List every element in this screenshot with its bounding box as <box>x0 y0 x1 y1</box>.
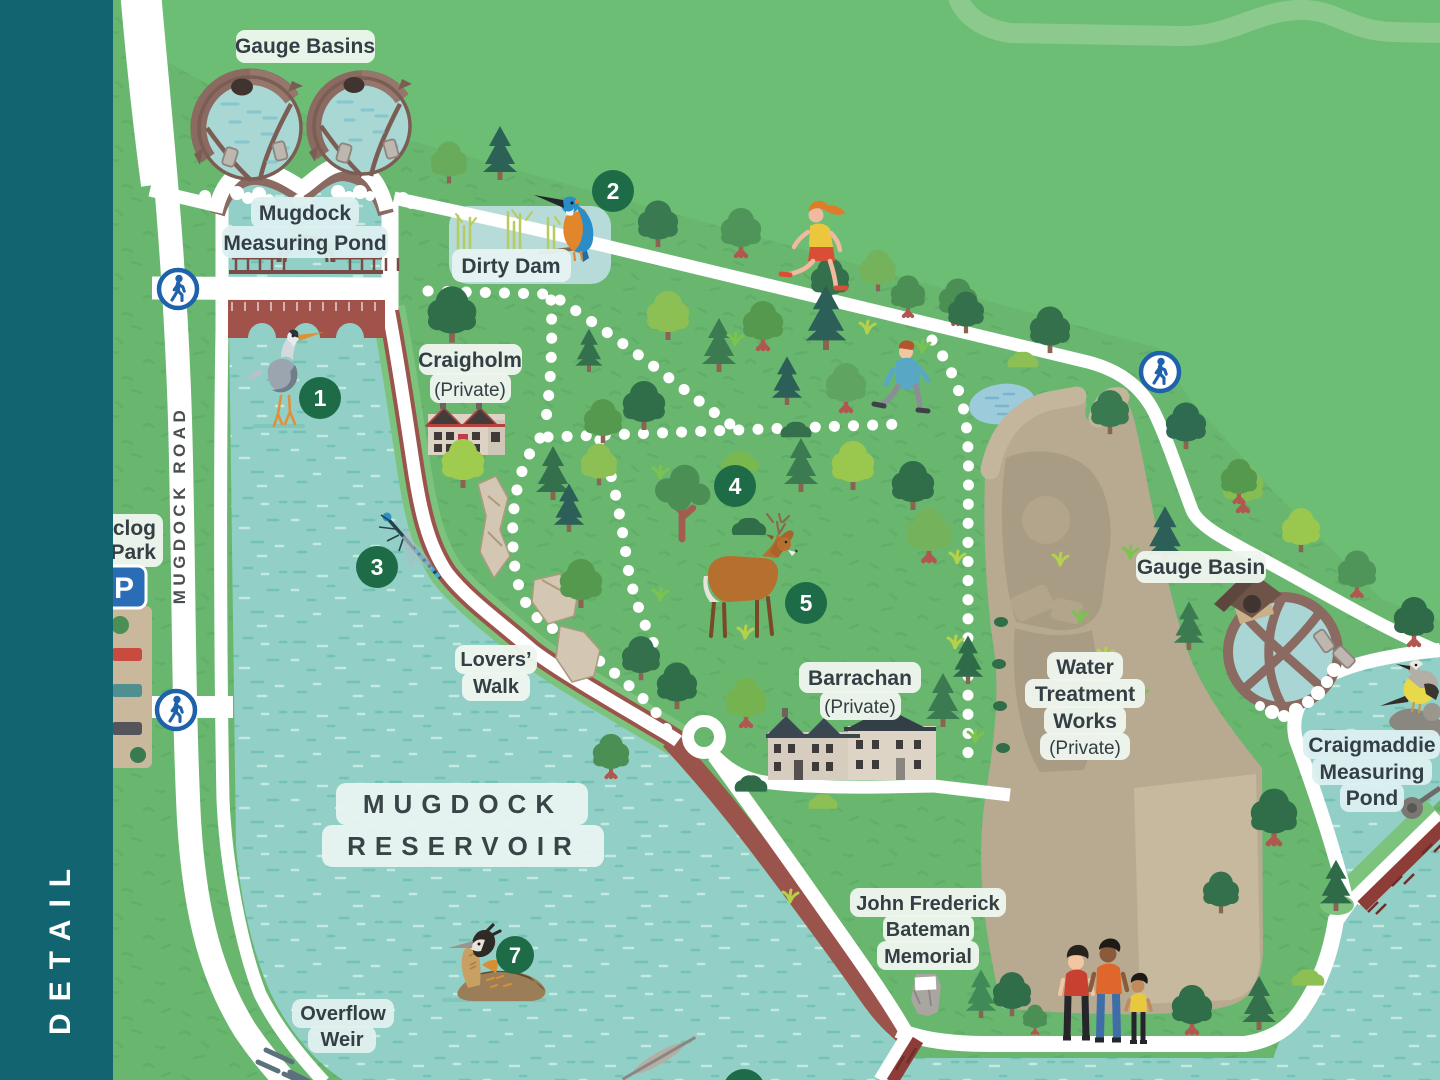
svg-text:MUGDOCK: MUGDOCK <box>363 789 563 819</box>
svg-text:(Private): (Private) <box>1049 738 1121 759</box>
svg-text:Barrachan: Barrachan <box>808 667 912 690</box>
svg-text:Works: Works <box>1053 710 1117 733</box>
svg-text:Gauge Basin: Gauge Basin <box>1137 556 1265 579</box>
svg-text:7: 7 <box>509 943 521 968</box>
svg-text:4: 4 <box>729 473 742 499</box>
svg-text:RESERVOIR: RESERVOIR <box>347 831 581 861</box>
svg-text:2: 2 <box>607 178 620 204</box>
svg-text:(Private): (Private) <box>824 697 896 718</box>
svg-text:Water: Water <box>1056 656 1114 679</box>
svg-text:Dirty Dam: Dirty Dam <box>461 255 560 278</box>
svg-text:Measuring: Measuring <box>1319 761 1424 784</box>
svg-text:Overflow: Overflow <box>300 1003 386 1025</box>
svg-text:MUGDOCK ROAD: MUGDOCK ROAD <box>170 406 189 605</box>
svg-text:Craigholm: Craigholm <box>418 349 522 372</box>
svg-text:Bateman: Bateman <box>886 919 970 941</box>
svg-text:Treatment: Treatment <box>1035 683 1135 706</box>
svg-text:(Private): (Private) <box>434 380 506 401</box>
svg-text:Craigmaddie: Craigmaddie <box>1308 734 1435 757</box>
svg-text:1: 1 <box>314 385 327 411</box>
svg-text:3: 3 <box>371 554 384 580</box>
svg-text:Park: Park <box>110 541 156 564</box>
svg-text:John Frederick: John Frederick <box>856 893 1000 915</box>
svg-text:Measuring Pond: Measuring Pond <box>223 232 386 255</box>
svg-text:P: P <box>114 572 134 605</box>
svg-text:Weir: Weir <box>321 1029 364 1051</box>
svg-text:Gauge Basins: Gauge Basins <box>235 35 375 58</box>
svg-text:Pond: Pond <box>1346 787 1399 810</box>
svg-text:Lovers’: Lovers’ <box>460 649 531 671</box>
svg-text:Walk: Walk <box>473 676 520 698</box>
svg-text:DETAIL: DETAIL <box>44 857 77 1035</box>
svg-text:Mugdock: Mugdock <box>259 202 351 225</box>
svg-text:Memorial: Memorial <box>884 946 972 968</box>
svg-text:5: 5 <box>800 590 813 616</box>
